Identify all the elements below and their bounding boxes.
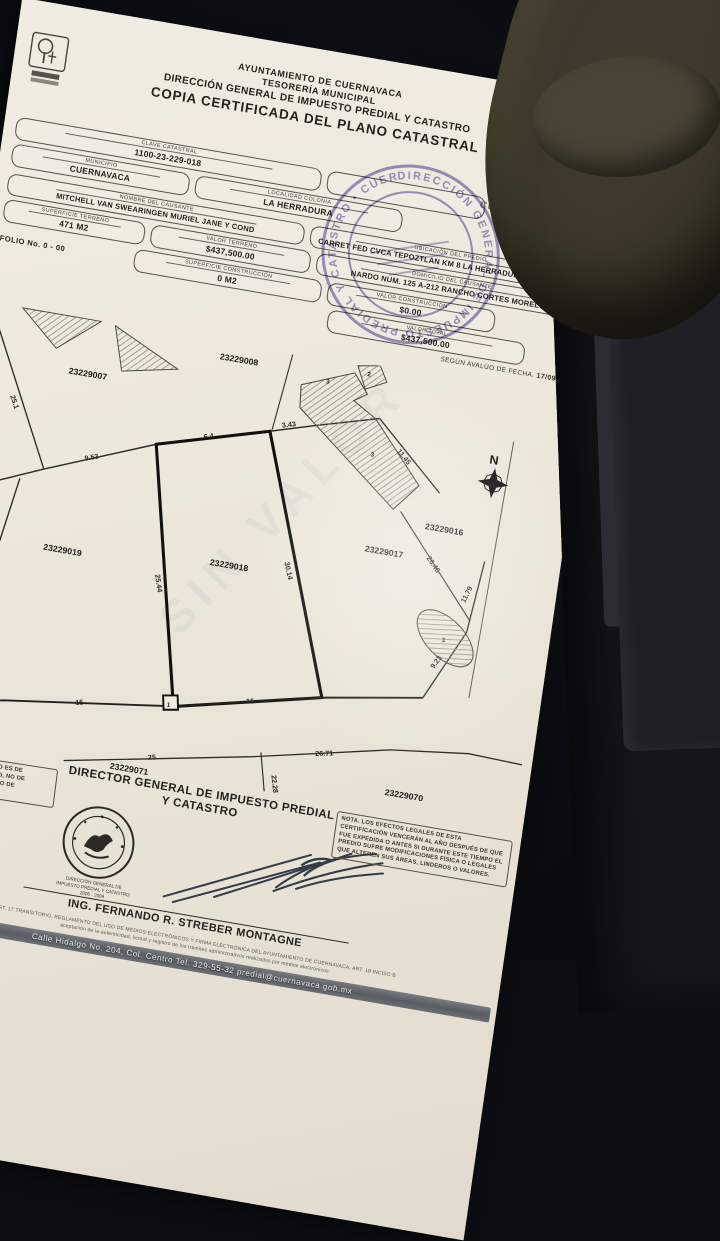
map-hatched-triangle — [109, 326, 182, 381]
compass-north-icon: N — [476, 451, 513, 501]
measurement-label: 3.43 — [281, 419, 296, 429]
measurement-label: 26.71 — [315, 748, 334, 758]
measurement-label: 25.1 — [8, 394, 21, 410]
map-parcel-edge — [0, 472, 20, 680]
parcel-id: 23229070 — [384, 787, 424, 803]
measurement-label: 15 — [75, 698, 84, 707]
stamp-arc-text: DIRECCIÓN GENERAL DE IMPUESTO PREDIAL Y … — [301, 146, 507, 352]
parcel-id: 23229017 — [364, 543, 404, 559]
measurement-label: 6.4 — [203, 431, 214, 441]
field-label: FOLIO No. — [0, 233, 41, 249]
measurement-label: 22.28 — [269, 775, 280, 793]
measurement-label: 25.44 — [153, 574, 164, 593]
parcel-id: 23229018 — [209, 557, 249, 573]
measurement-label: 26.46 — [425, 554, 443, 574]
map-bottom-boundary — [0, 614, 423, 787]
measurement-label: 9.53 — [84, 452, 100, 463]
parcel-id: 23229008 — [219, 351, 259, 367]
parcel-id: 23229019 — [43, 542, 83, 558]
official-seal-eagle-icon — [56, 799, 142, 887]
parcel-id: 23229007 — [68, 366, 108, 382]
parcel-id: 23229016 — [424, 521, 464, 537]
map-tick-line — [256, 752, 270, 791]
measurement-label: 25 — [148, 753, 157, 762]
cadastral-map: 1 N 23229007 23229008 23229019 23229018 … — [0, 298, 579, 841]
measurement-label: 30.14 — [282, 561, 295, 580]
measurement-label: 11.79 — [459, 585, 475, 605]
map-hatched-triangle — [18, 308, 101, 355]
map-hatched-zone — [286, 364, 433, 513]
bag-fold — [526, 47, 720, 186]
measurement-label: 16 — [246, 696, 255, 705]
field-value: 0 - 00 — [43, 241, 66, 254]
photo-of-cadastral-document: { "header": { "municipality": "AYUNTAMIE… — [0, 0, 720, 960]
svg-text:N: N — [489, 453, 500, 468]
